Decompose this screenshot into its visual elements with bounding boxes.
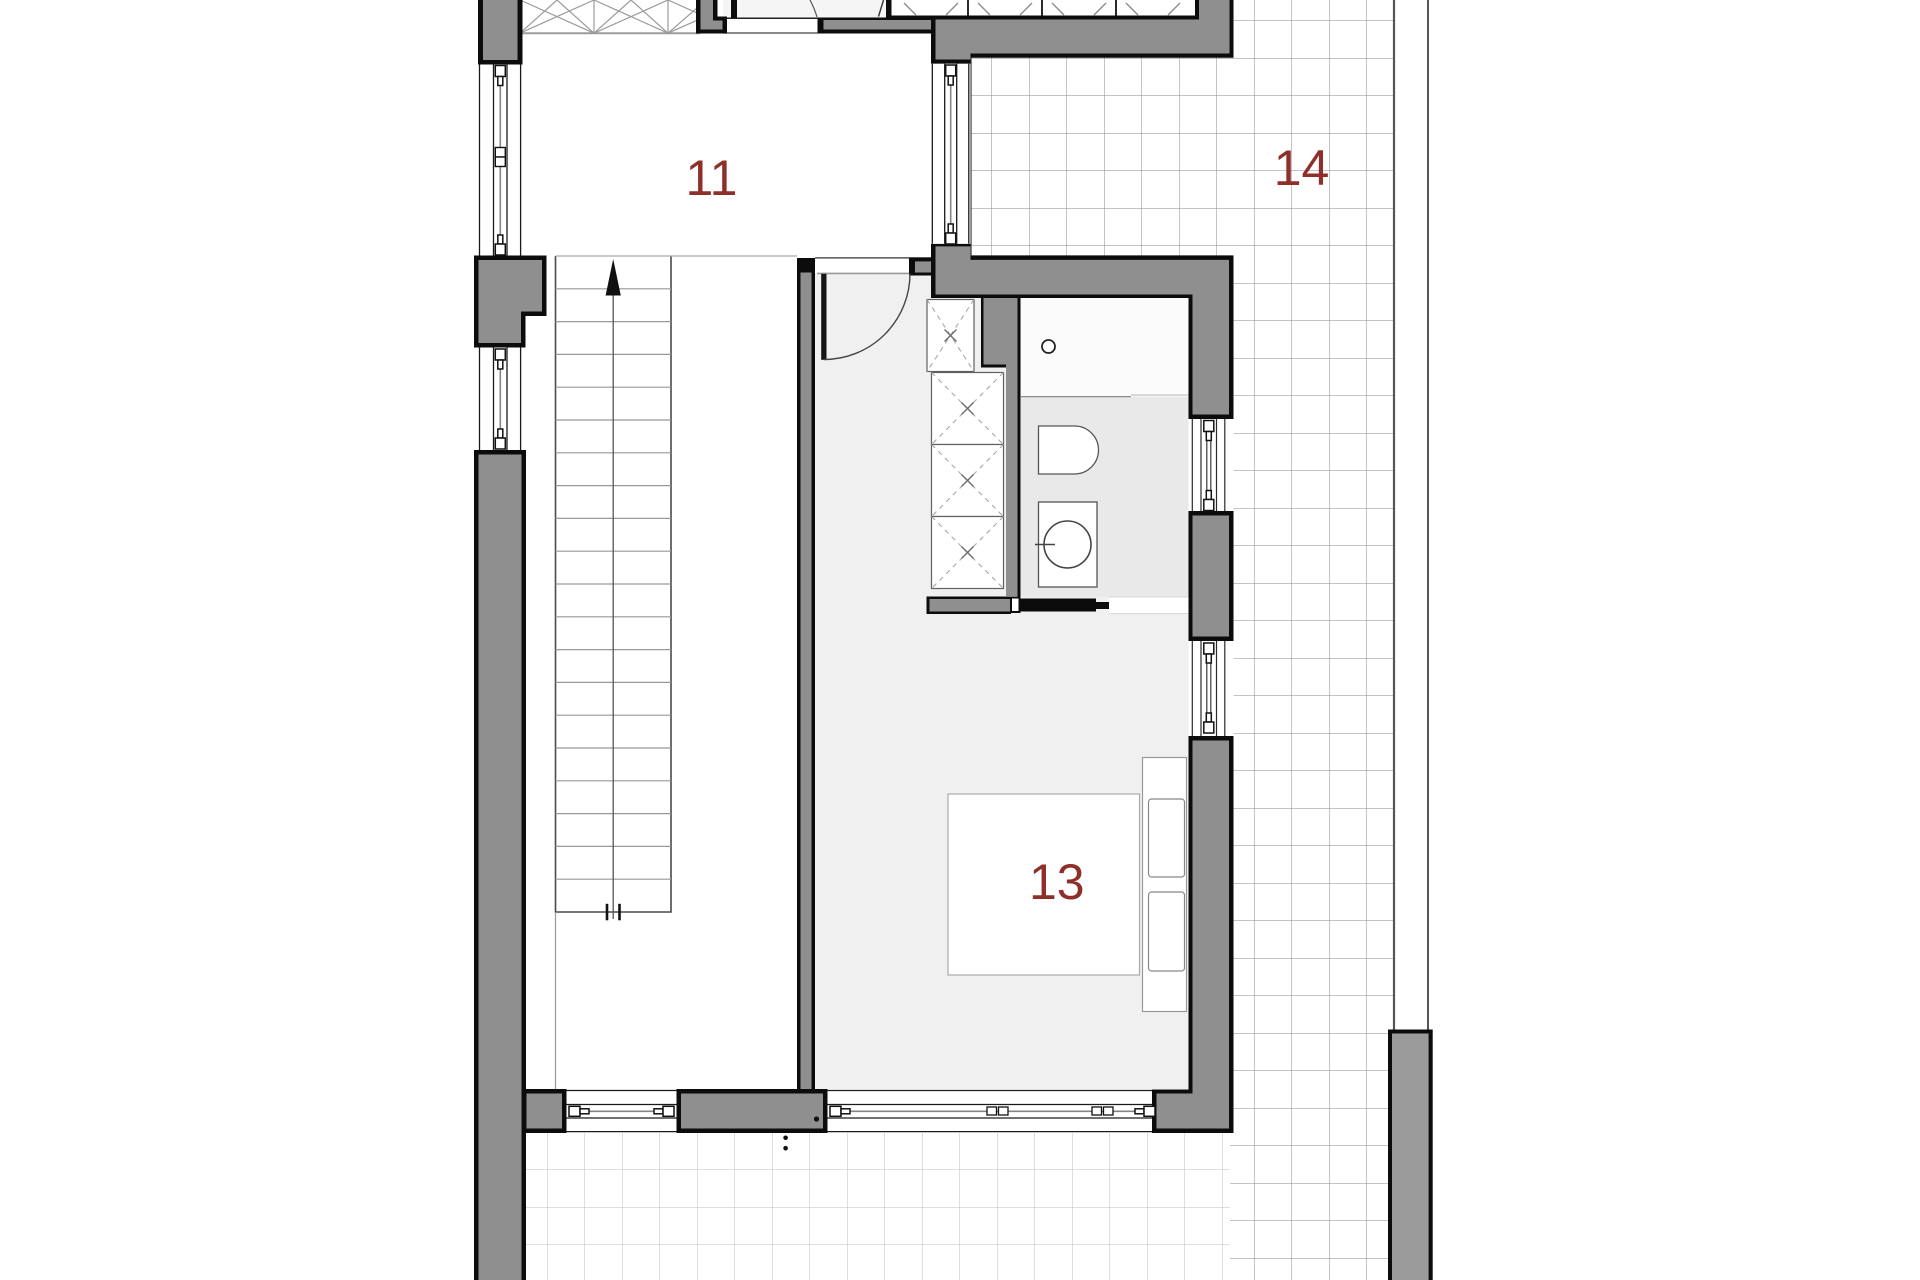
svg-text:11: 11: [686, 150, 738, 206]
svg-text:14: 14: [1274, 140, 1330, 196]
svg-text:13: 13: [1029, 854, 1085, 910]
